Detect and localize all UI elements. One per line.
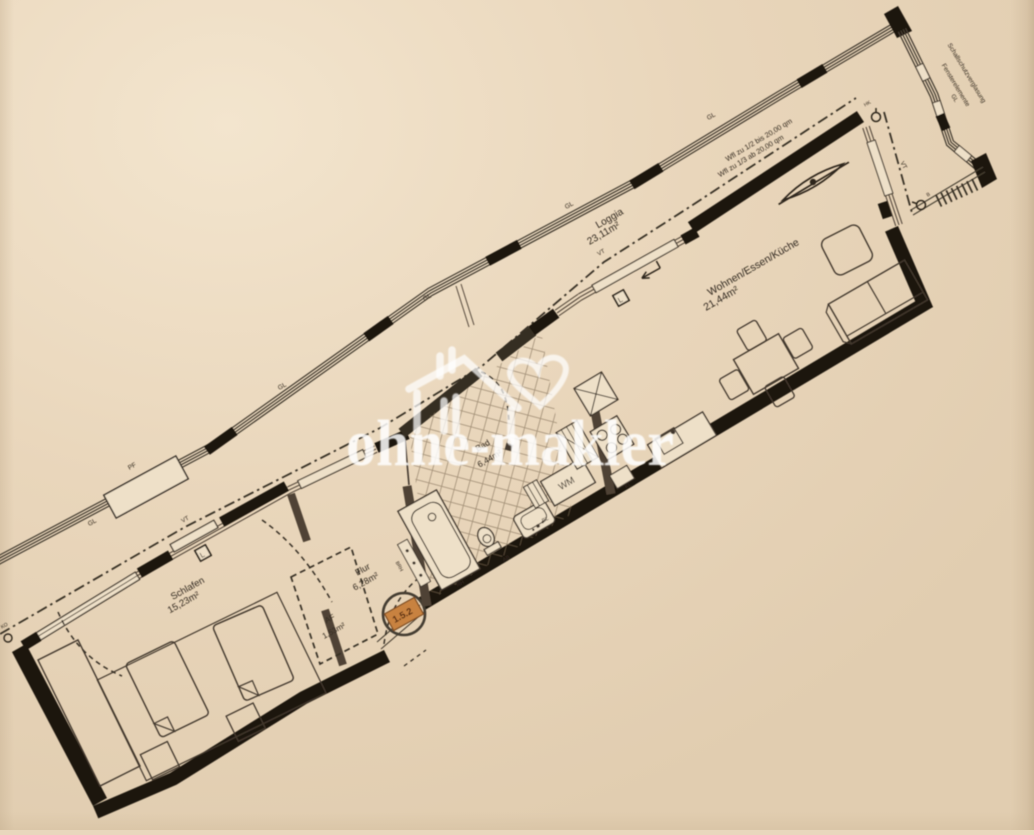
svg-text:ohne-makler: ohne-makler [346,407,674,480]
